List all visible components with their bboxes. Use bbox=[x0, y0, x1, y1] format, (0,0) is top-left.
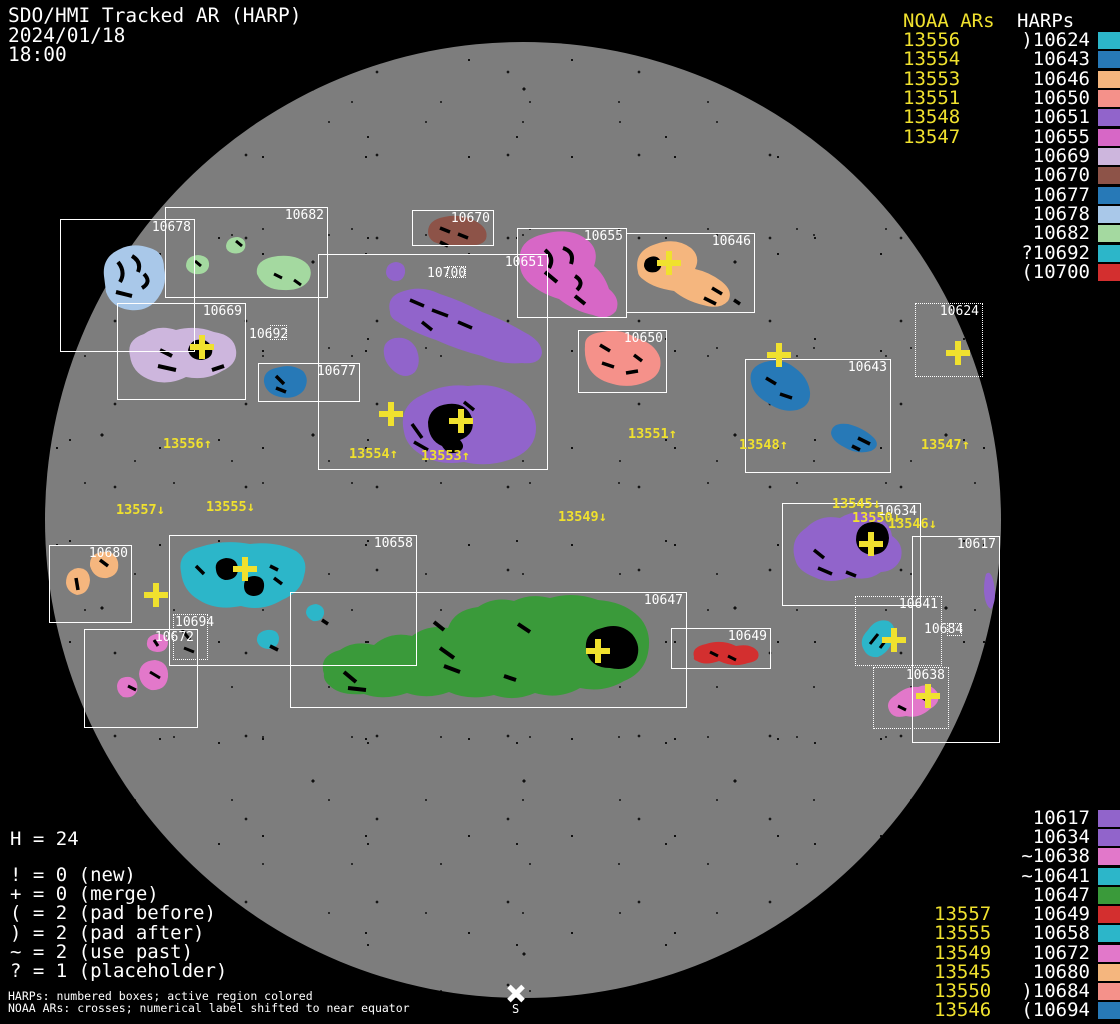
caption-noaa: NOAA ARs: crosses; numerical label shift… bbox=[8, 1003, 410, 1015]
harp-box-label: 10649 bbox=[728, 629, 767, 644]
noaa-cross-13555 bbox=[233, 557, 257, 581]
legend-row: 10678 bbox=[0, 205, 1120, 224]
noaa-cross-13557 bbox=[144, 583, 168, 607]
harp-box-label: 10672 bbox=[155, 630, 194, 645]
legend-row: 10617 bbox=[0, 809, 1120, 828]
harp-color-swatch bbox=[1098, 109, 1120, 126]
legend-row: ~10638 bbox=[0, 847, 1120, 866]
stat-placeholder: ? = 1 (placeholder) bbox=[10, 962, 227, 981]
harp-box-label: 10641 bbox=[899, 597, 938, 612]
noaa-cross-13545 bbox=[859, 532, 883, 556]
harp-color-swatch bbox=[1098, 225, 1120, 242]
harp-color-swatch bbox=[1098, 810, 1120, 827]
harp-color-swatch bbox=[1098, 167, 1120, 184]
noaa-label-13548: 13548↑ bbox=[739, 437, 788, 453]
noaa-cross-13554 bbox=[379, 402, 403, 426]
noaa-number: 13547 bbox=[903, 128, 960, 147]
harp-color-swatch bbox=[1098, 983, 1120, 1000]
legend-row: ~10641 bbox=[0, 867, 1120, 886]
noaa-cross-13553 bbox=[449, 409, 473, 433]
noaa-cross-13548 bbox=[767, 343, 791, 367]
legend-row: (10700 bbox=[0, 263, 1120, 282]
harp-number: 10643 bbox=[1000, 50, 1090, 69]
noaa-label-13555: 13555↓ bbox=[206, 499, 255, 515]
legend-row: ?10692 bbox=[0, 244, 1120, 263]
noaa-label-13549: 13549↓ bbox=[558, 509, 607, 525]
harp-box-label: 10684 bbox=[924, 622, 963, 637]
plot-title: SDO/HMI Tracked AR (HARP) bbox=[8, 6, 302, 26]
harp-color-swatch bbox=[1098, 887, 1120, 904]
legend-row: 1354810651 bbox=[0, 108, 1120, 127]
harp-box-label: 10692 bbox=[249, 327, 288, 342]
harp-color-swatch bbox=[1098, 129, 1120, 146]
harp-color-swatch bbox=[1098, 945, 1120, 962]
harp-full-disk-plot: 10678 10682 10669 10677 10670 10651 1065… bbox=[0, 0, 1120, 1024]
harp-color-swatch bbox=[1098, 848, 1120, 865]
harp-box-label: 10669 bbox=[203, 304, 242, 319]
harp-box-10643: 10643 bbox=[745, 359, 891, 473]
legend-row: 10682 bbox=[0, 224, 1120, 243]
harp-color-swatch bbox=[1098, 245, 1120, 262]
harp-box-10647: 10647 bbox=[290, 592, 687, 708]
harp-number: 10670 bbox=[1000, 166, 1090, 185]
harp-number: 10651 bbox=[1000, 108, 1090, 127]
legend-row: 10677 bbox=[0, 186, 1120, 205]
harp-box-label: 10680 bbox=[89, 546, 128, 561]
harp-box-label: 10617 bbox=[957, 537, 996, 552]
harp-box-label: 10638 bbox=[906, 668, 945, 683]
harp-box-label: 10694 bbox=[175, 615, 214, 630]
noaa-label-13553: 13553↑ bbox=[421, 448, 470, 464]
noaa-cross-13556 bbox=[190, 335, 214, 359]
harp-box-10624: 10624 bbox=[915, 303, 983, 377]
noaa-label-13557: 13557↓ bbox=[116, 502, 165, 518]
legend-row: 10634 bbox=[0, 828, 1120, 847]
harp-box-label: 10647 bbox=[644, 593, 683, 608]
noaa-label-13551: 13551↑ bbox=[628, 426, 677, 442]
legend-row: 10670 bbox=[0, 166, 1120, 185]
stat-pad-before: ( = 2 (pad before) bbox=[10, 904, 216, 923]
noaa-label-13556: 13556↑ bbox=[163, 436, 212, 452]
harp-box-10672: 10672 bbox=[84, 629, 198, 728]
harp-color-swatch bbox=[1098, 868, 1120, 885]
harp-color-swatch bbox=[1098, 51, 1120, 68]
noaa-number: 13546 bbox=[934, 1001, 991, 1020]
noaa-cross-13549 bbox=[586, 639, 610, 663]
noaa-cross-13546 bbox=[916, 684, 940, 708]
south-pole-label: S bbox=[512, 1002, 519, 1016]
harp-number: ~10638 bbox=[1000, 847, 1090, 866]
legend-row: 10669 bbox=[0, 147, 1120, 166]
harp-box-label: 10624 bbox=[940, 304, 979, 319]
harp-color-swatch bbox=[1098, 206, 1120, 223]
harp-color-swatch bbox=[1098, 32, 1120, 49]
noaa-number: 13555 bbox=[934, 924, 991, 943]
harp-number: (10694 bbox=[1000, 1001, 1090, 1020]
harp-box-10650: 10650 bbox=[578, 330, 667, 393]
harp-color-swatch bbox=[1098, 71, 1120, 88]
harp-color-swatch bbox=[1098, 964, 1120, 981]
harp-color-swatch bbox=[1098, 925, 1120, 942]
harp-color-swatch bbox=[1098, 148, 1120, 165]
noaa-number: 13554 bbox=[903, 50, 960, 69]
harp-color-swatch bbox=[1098, 90, 1120, 107]
noaa-cross-13550 bbox=[882, 628, 906, 652]
harp-box-10649: 10649 bbox=[671, 628, 771, 669]
harp-count: H = 24 bbox=[10, 830, 79, 849]
harp-box-label: 10650 bbox=[624, 331, 663, 346]
harp-box-10669: 10669 bbox=[117, 303, 246, 400]
harp-number: 10682 bbox=[1000, 224, 1090, 243]
harp-number: (10700 bbox=[1000, 263, 1090, 282]
noaa-number: 13548 bbox=[903, 108, 960, 127]
noaa-cross-13547 bbox=[946, 341, 970, 365]
harp-color-swatch bbox=[1098, 906, 1120, 923]
noaa-label-13554: 13554↑ bbox=[349, 446, 398, 462]
harp-box-label: 10643 bbox=[848, 360, 887, 375]
harp-color-swatch bbox=[1098, 264, 1120, 281]
harp-box-10680: 10680 bbox=[49, 545, 132, 623]
harp-color-swatch bbox=[1098, 187, 1120, 204]
legend-row: 1354710655 bbox=[0, 128, 1120, 147]
harp-color-swatch bbox=[1098, 829, 1120, 846]
harp-box-label: 10658 bbox=[374, 536, 413, 551]
noaa-label-13547: 13547↑ bbox=[921, 437, 970, 453]
harp-color-swatch bbox=[1098, 1002, 1120, 1019]
harp-number: 10658 bbox=[1000, 924, 1090, 943]
harp-box-10651: 10651 bbox=[318, 254, 548, 470]
noaa-label-13546: 13546↓ bbox=[888, 516, 937, 532]
legend-row: 1355410643 bbox=[0, 50, 1120, 69]
